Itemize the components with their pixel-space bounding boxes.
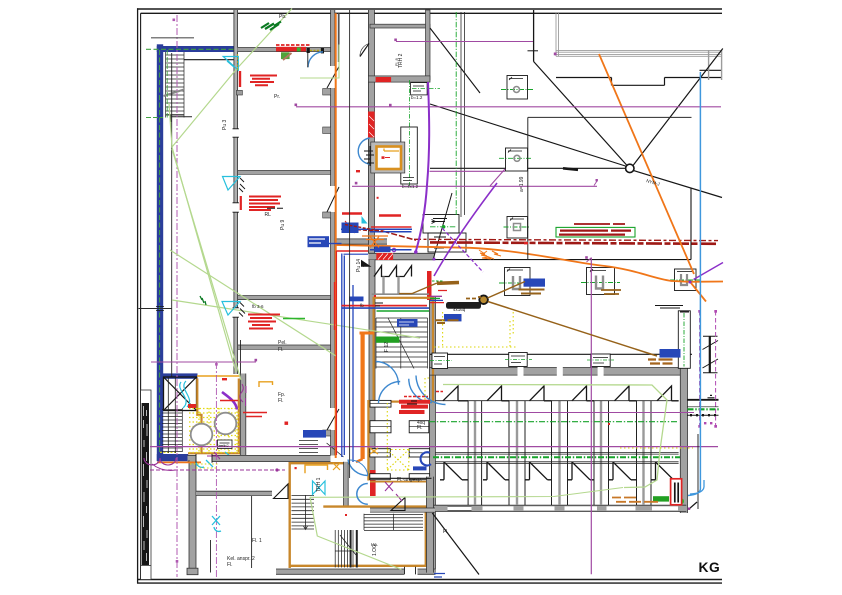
svg-text:a=1.99: a=1.99 (519, 176, 525, 192)
svg-text:Fl.: Fl. (227, 562, 233, 568)
svg-text:Pu 9: Pu 9 (280, 219, 286, 230)
svg-text:b=4x1.2: b=4x1.2 (402, 184, 419, 189)
svg-text:Fl.: Fl. (278, 398, 284, 404)
svg-text:Fl.: Fl. (278, 347, 284, 353)
svg-text:b=1.2: b=1.2 (411, 95, 423, 100)
svg-text:Pel.: Pel. (278, 340, 287, 346)
svg-text:RL: RL (265, 212, 272, 218)
svg-text:b=1.2: b=1.2 (219, 443, 230, 448)
svg-text:F 12: F 12 (384, 342, 390, 352)
svg-text:F: F (363, 263, 366, 269)
svg-text:Fl.: Fl. (417, 425, 423, 431)
svg-text:Fl. 8: Fl. 8 (394, 57, 399, 66)
svg-text:1.OG: 1.OG (372, 544, 378, 556)
svg-text:TRH 1: TRH 1 (316, 477, 322, 492)
svg-text:Pu 3: Pu 3 (222, 119, 228, 130)
svg-text:Pr.: Pr. (274, 94, 280, 100)
svg-text:Fl. 1: Fl. 1 (252, 538, 262, 544)
svg-text:KG: KG (699, 560, 721, 575)
svg-text:Fl.: Fl. (443, 529, 449, 535)
svg-text:4x16q: 4x16q (453, 307, 466, 312)
svg-text:Pu 14: Pu 14 (356, 259, 362, 272)
svg-text:fb: fb (360, 303, 364, 308)
svg-text:Pb.: Pb. (279, 14, 287, 20)
svg-text:Fl.-angesp.: Fl.-angesp. (397, 477, 422, 483)
svg-text:fb 3-6: fb 3-6 (252, 304, 264, 309)
